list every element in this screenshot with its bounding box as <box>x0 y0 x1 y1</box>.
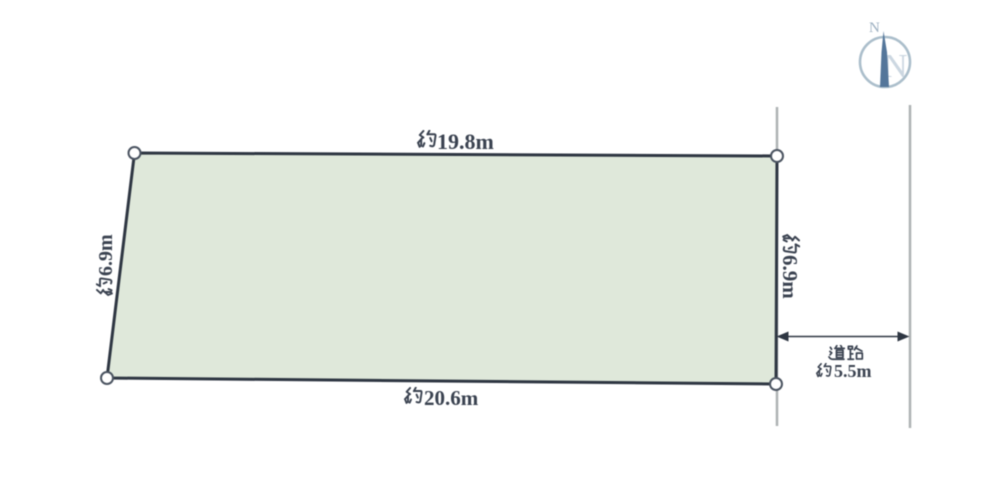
svg-text:19.8m: 19.8m <box>437 129 494 154</box>
svg-text:5.5m: 5.5m <box>834 361 872 381</box>
svg-text:N: N <box>869 20 880 36</box>
svg-text:20.6m: 20.6m <box>424 386 479 410</box>
svg-text:6.9m: 6.9m <box>778 255 802 299</box>
svg-text:6.9m: 6.9m <box>95 234 117 276</box>
